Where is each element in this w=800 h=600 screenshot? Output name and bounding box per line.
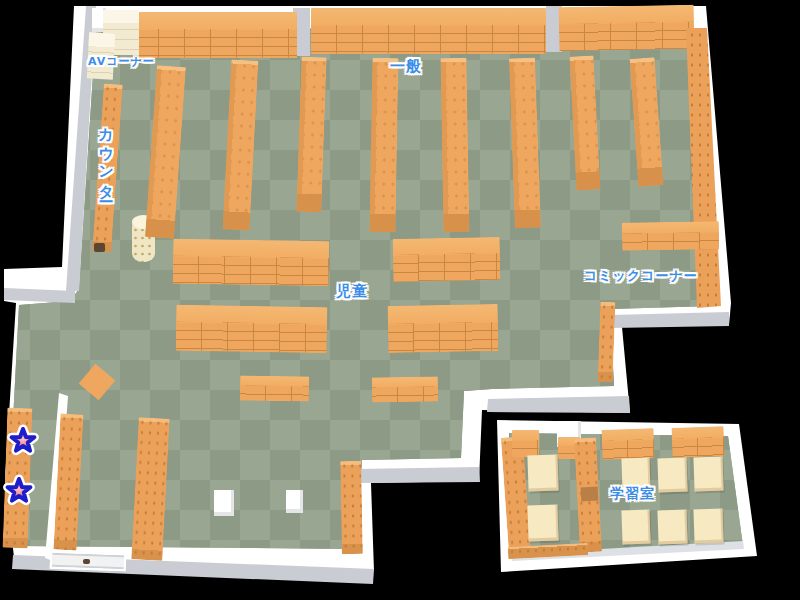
floor-box [286,490,303,513]
counter-item [94,243,105,252]
shelf-bank [311,8,546,54]
floor-box [214,490,234,516]
study-divider-gap [581,487,599,502]
study-table [527,504,558,541]
study-table [657,458,687,493]
kids-shelf [176,305,328,354]
label-counter: カウンター [97,117,114,195]
kids-shelf [388,304,499,353]
label-general: 一般 [390,58,422,75]
study-table [621,510,650,545]
star-1-marker [4,422,42,460]
label-av-corner: AVコーナー [88,56,155,69]
bookshelf-range [369,58,398,232]
door-knob [83,559,90,564]
star-icon [4,422,42,460]
study-table [693,509,723,544]
kids-bench [240,375,309,401]
label-study-room: 学習室 [610,485,655,501]
study-table [527,454,558,491]
star-icon [0,472,38,510]
kids-shelf [393,237,501,282]
study-shelf [671,426,724,458]
study-table [657,510,687,545]
comic-shelf [622,221,719,251]
shelf-bank [559,5,695,51]
kids-bench [372,376,438,402]
study-table [693,457,723,492]
entrance-shelf [340,461,363,554]
label-comic-corner: コミックコーナー [584,269,698,284]
study-shelf [512,430,539,457]
kids-shelf [173,239,330,287]
label-children: 児童 [336,283,368,300]
bookshelf-range [440,58,469,232]
study-shelf [601,428,654,460]
comic-shelf [598,302,616,382]
star-2-marker [0,472,38,510]
library-floor-map: AVコーナー カウンター 一般 児童 コミックコーナー 学習室 [0,0,800,600]
shelf-bank [133,12,297,58]
